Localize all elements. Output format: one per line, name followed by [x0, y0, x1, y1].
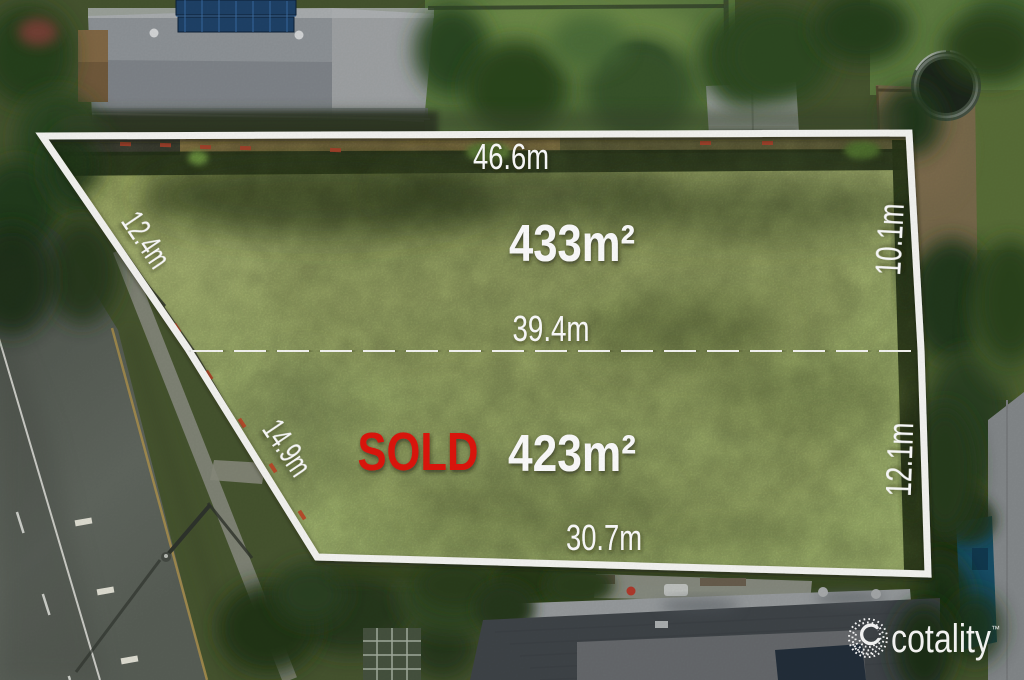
svg-text:™: ™	[991, 624, 1000, 634]
